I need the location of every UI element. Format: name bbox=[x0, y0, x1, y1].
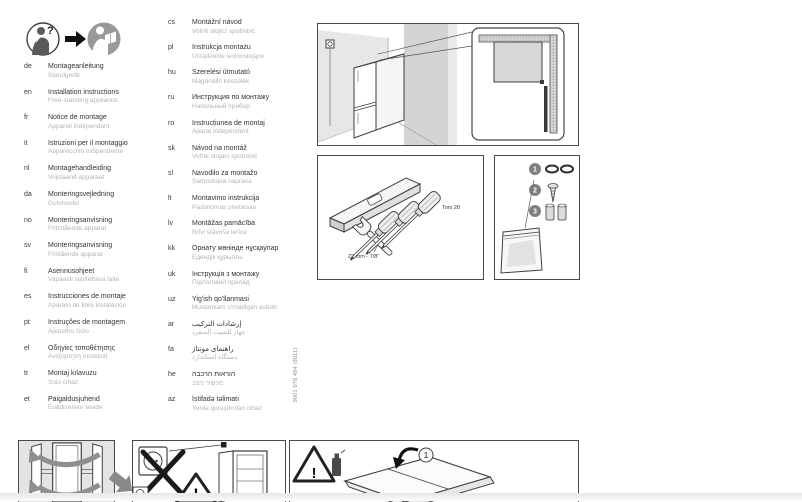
language-row-uz: uzYig'ish qo'llanmasiMustahkam o'rnatilg… bbox=[168, 296, 277, 314]
language-code: ro bbox=[168, 120, 192, 129]
language-subtitle: Samostojna naprava bbox=[192, 178, 257, 186]
svg-text:3: 3 bbox=[533, 209, 537, 216]
language-row-sl: slNavodilo za montažoSamostojna naprava bbox=[168, 170, 257, 188]
language-row-it: itIstruzioni per il montaggioApparecchio… bbox=[24, 140, 128, 158]
language-subtitle: Brīvi stāvoša ierīce bbox=[192, 229, 255, 237]
language-subtitle: Solo cihaz bbox=[48, 379, 97, 387]
language-row-en: enInstallation instructionsFree-standing… bbox=[24, 89, 119, 107]
language-subtitle: Pastatomas prietaisas bbox=[192, 204, 259, 212]
language-subtitle: Gulvmodel bbox=[48, 200, 114, 208]
tools-illustration: Torx 20 22 mm - 7/8" bbox=[318, 156, 483, 279]
language-code: it bbox=[24, 140, 48, 149]
svg-text:2: 2 bbox=[533, 188, 537, 195]
step-1-badge: 1 bbox=[419, 448, 433, 462]
language-row-el: elΟδηγίες τοποθέτησηςΑνεξάρτητη συσκευή bbox=[24, 345, 115, 363]
language-code: uk bbox=[168, 271, 192, 280]
arrow-right-icon bbox=[65, 31, 86, 47]
language-title: Installation instructions bbox=[48, 89, 119, 98]
language-row-he: heהוראות הרכבהמכשיר ניצב bbox=[168, 371, 235, 389]
language-code: kk bbox=[168, 245, 192, 254]
part-number-badge-3: 3 bbox=[529, 205, 541, 217]
language-title: Montážní návod bbox=[192, 19, 255, 28]
language-title: Asennusohjeet bbox=[48, 268, 119, 277]
svg-text:1: 1 bbox=[424, 450, 429, 460]
language-code: ru bbox=[168, 94, 192, 103]
aerosol-can-icon bbox=[332, 450, 345, 476]
language-row-sv: svMonteringsanvisningFristående apparat bbox=[24, 242, 112, 260]
language-row-uk: ukІнструкція з монтажуПідлоговий прилад bbox=[168, 271, 259, 289]
language-code: sv bbox=[24, 242, 48, 251]
fridge-top-view bbox=[494, 42, 542, 82]
language-subtitle: Magánálló készülék bbox=[192, 78, 250, 86]
language-subtitle: Mustahkam o'rnatilgan asbob bbox=[192, 304, 277, 312]
language-subtitle: Urządzenie wolnostojące bbox=[192, 53, 264, 61]
language-row-az: azİstifadə təlimatıYerdə quraşdırılan ci… bbox=[168, 396, 262, 414]
language-subtitle: جهاز للتثبيت المنفرد bbox=[192, 329, 245, 337]
language-row-sk: skNávod na montážVoľne stojací spotrebič bbox=[168, 145, 258, 163]
language-title: Istruzioni per il montaggio bbox=[48, 140, 128, 149]
language-row-lv: lvMontāžas pamācībaBrīvi stāvoša ierīce bbox=[168, 220, 255, 238]
language-title: Monteringsvejledning bbox=[48, 191, 114, 200]
language-title: Орнату жөнінде нұсқаулар bbox=[192, 245, 278, 254]
door-clearance-bar bbox=[544, 86, 548, 132]
language-title: Instrucțiunea de montaj bbox=[192, 120, 265, 129]
language-code: fa bbox=[168, 346, 192, 355]
language-code: da bbox=[24, 191, 48, 200]
fitting-parts-panel: 1 2 3 bbox=[494, 155, 580, 280]
manual-cover-page: { "header": { "icons": ["question-person… bbox=[0, 0, 802, 501]
part-number-badge-1: 1 bbox=[529, 163, 541, 175]
language-subtitle: Free-standing appliance bbox=[48, 97, 119, 105]
language-title: Instrucciones de montaje bbox=[48, 293, 126, 302]
language-subtitle: Aparat independent bbox=[192, 128, 265, 136]
language-title: Инструкция по монтажу bbox=[192, 94, 269, 103]
room-corner-scene bbox=[318, 24, 472, 145]
language-subtitle: Voľne stojací spotrebič bbox=[192, 153, 258, 161]
language-code: es bbox=[24, 293, 48, 302]
language-code: el bbox=[24, 345, 48, 354]
language-subtitle: دستگاه استاندارد bbox=[192, 354, 237, 362]
language-subtitle: Appareil indépendant bbox=[48, 123, 109, 131]
language-title: Monteringsanvisning bbox=[48, 217, 112, 226]
language-code: lt bbox=[168, 195, 192, 204]
language-code: sl bbox=[168, 170, 192, 179]
language-title: Instruções de montagem bbox=[48, 319, 125, 328]
language-code: az bbox=[168, 396, 192, 405]
language-row-hu: huSzerelési útmutatóMagánálló készülék bbox=[168, 69, 250, 87]
language-row-tr: trMontaj kılavuzuSolo cihaz bbox=[24, 370, 97, 388]
language-title: Montagehandleiding bbox=[48, 165, 111, 174]
language-code: he bbox=[168, 371, 192, 380]
language-row-ar: arإرشادات التركيبجهاز للتثبيت المنفرد bbox=[168, 321, 245, 339]
language-row-pt: ptInstruções de montagemAparelho Solo bbox=[24, 319, 125, 337]
language-title: Montavimo instrukcija bbox=[192, 195, 259, 204]
language-subtitle: Volně stojící spotřebič bbox=[192, 28, 255, 36]
language-subtitle: Vapaasti sijoitettava laite bbox=[48, 276, 119, 284]
language-title: Návod na montáž bbox=[192, 145, 258, 154]
placement-illustration-panel bbox=[317, 23, 579, 146]
language-code: et bbox=[24, 396, 48, 405]
language-row-da: daMonteringsvejledningGulvmodel bbox=[24, 191, 114, 209]
language-title: إرشادات التركيب bbox=[192, 321, 245, 330]
language-title: Yig'ish qo'llanmasi bbox=[192, 296, 277, 305]
question-person-icon: ? bbox=[27, 23, 59, 55]
language-code: nl bbox=[24, 165, 48, 174]
language-subtitle: Напольный прибор bbox=[192, 103, 269, 111]
language-subtitle: Aparelho Solo bbox=[48, 328, 125, 336]
language-code: uz bbox=[168, 296, 192, 305]
fridge-isometric bbox=[354, 54, 404, 138]
language-row-nl: nlMontagehandleidingVrijstaand apparaat bbox=[24, 165, 111, 183]
language-row-fi: fiAsennusohjeetVapaasti sijoitettava lai… bbox=[24, 268, 119, 286]
language-code: pt bbox=[24, 319, 48, 328]
placement-illustration bbox=[318, 24, 578, 145]
svg-text:1: 1 bbox=[533, 167, 537, 174]
reading-person-icon bbox=[88, 23, 121, 56]
language-row-pl: plInstrukcja montażuUrządzenie wolnostoj… bbox=[168, 44, 264, 62]
part-number-badge-2: 2 bbox=[529, 184, 541, 196]
language-title: Szerelési útmutató bbox=[192, 69, 250, 78]
language-subtitle: מכשיר ניצב bbox=[192, 380, 235, 388]
language-code: de bbox=[24, 63, 48, 72]
spacers-icon bbox=[546, 204, 566, 220]
language-subtitle: Yerdə quraşdırılan cihaz bbox=[192, 405, 262, 413]
document-part-number: 9001 078 484 (9811) bbox=[293, 330, 299, 420]
clearance-detail-callout bbox=[472, 28, 564, 140]
svg-text:!: ! bbox=[312, 465, 317, 482]
language-row-et: etPaigaldusjuhendEraldiseisev seade bbox=[24, 396, 103, 414]
language-code: sk bbox=[168, 145, 192, 154]
language-row-lt: ltMontavimo instrukcijaPastatomas prieta… bbox=[168, 195, 259, 213]
language-title: Montāžas pamācība bbox=[192, 220, 255, 229]
language-code: pl bbox=[168, 44, 192, 53]
language-row-ro: roInstrucțiunea de montajAparat independ… bbox=[168, 120, 265, 138]
question-mark: ? bbox=[47, 25, 54, 37]
accessory-bag-icon bbox=[501, 228, 542, 273]
language-title: Notice de montage bbox=[48, 114, 109, 123]
language-title: Οδηγίες τοποθέτησης bbox=[48, 345, 115, 354]
warning-triangle-icon: ! bbox=[294, 447, 334, 482]
language-row-cs: csMontážní návodVolně stojící spotřebič bbox=[168, 19, 255, 37]
language-row-es: esInstrucciones de montajeAparato de lib… bbox=[24, 293, 126, 311]
language-title: İstifadə təlimatı bbox=[192, 396, 262, 405]
language-subtitle: Ανεξάρτητη συσκευή bbox=[48, 353, 115, 361]
language-code: tr bbox=[24, 370, 48, 379]
parts-illustration: 1 2 3 bbox=[495, 156, 579, 279]
language-subtitle: Vrijstaand apparaat bbox=[48, 174, 111, 182]
language-title: Montaj kılavuzu bbox=[48, 370, 97, 379]
language-code: ar bbox=[168, 321, 192, 330]
language-code: lv bbox=[168, 220, 192, 229]
language-subtitle: Aparato de libre instalación bbox=[48, 302, 126, 310]
language-title: Navodilo za montažo bbox=[192, 170, 257, 179]
header-pictograms: ? bbox=[24, 19, 124, 59]
language-title: Instrukcja montażu bbox=[192, 44, 264, 53]
wrench-size-label: 22 mm - 7/8" bbox=[348, 254, 379, 260]
language-title: Paigaldusjuhend bbox=[48, 396, 103, 405]
language-code: fi bbox=[24, 268, 48, 277]
language-code: fr bbox=[24, 114, 48, 123]
language-title: Montageanleitung bbox=[48, 63, 104, 72]
cover-caps-icon bbox=[546, 166, 573, 173]
language-row-kk: kkОрнату жөнінде нұсқауларЕдендік құрылғ… bbox=[168, 245, 278, 263]
torx-size-label: Torx 20 bbox=[442, 205, 460, 211]
bag-callout-curve bbox=[525, 180, 534, 228]
language-title: הוראות הרכבה bbox=[192, 371, 235, 380]
language-title: Інструкція з монтажу bbox=[192, 271, 259, 280]
language-code: hu bbox=[168, 69, 192, 78]
language-subtitle: Fristående apparat bbox=[48, 251, 112, 259]
language-row-fa: faراهنمای مونتاژدستگاه استاندارد bbox=[168, 346, 237, 364]
screw-icon bbox=[548, 184, 558, 203]
language-subtitle: Підлоговий прилад bbox=[192, 279, 259, 287]
language-row-ru: ruИнструкция по монтажуНапольный прибор bbox=[168, 94, 269, 112]
language-row-fr: frNotice de montageAppareil indépendant bbox=[24, 114, 109, 132]
language-subtitle: Eraldiseisev seade bbox=[48, 404, 103, 412]
language-subtitle: Standgerät bbox=[48, 72, 104, 80]
required-tools-panel: Torx 20 22 mm - 7/8" bbox=[317, 155, 484, 280]
language-row-de: deMontageanleitungStandgerät bbox=[24, 63, 104, 81]
language-code: no bbox=[24, 217, 48, 226]
language-title: Monteringsanvisning bbox=[48, 242, 112, 251]
language-row-no: noMonteringsanvisningFrittstående appara… bbox=[24, 217, 112, 235]
language-code: cs bbox=[168, 19, 192, 28]
language-code: en bbox=[24, 89, 48, 98]
language-subtitle: Frittstående apparat bbox=[48, 225, 112, 233]
page-bottom-cut bbox=[0, 493, 802, 501]
language-subtitle: Едендік құрылғы bbox=[192, 254, 278, 262]
language-subtitle: Apparecchio indipendente bbox=[48, 148, 128, 156]
